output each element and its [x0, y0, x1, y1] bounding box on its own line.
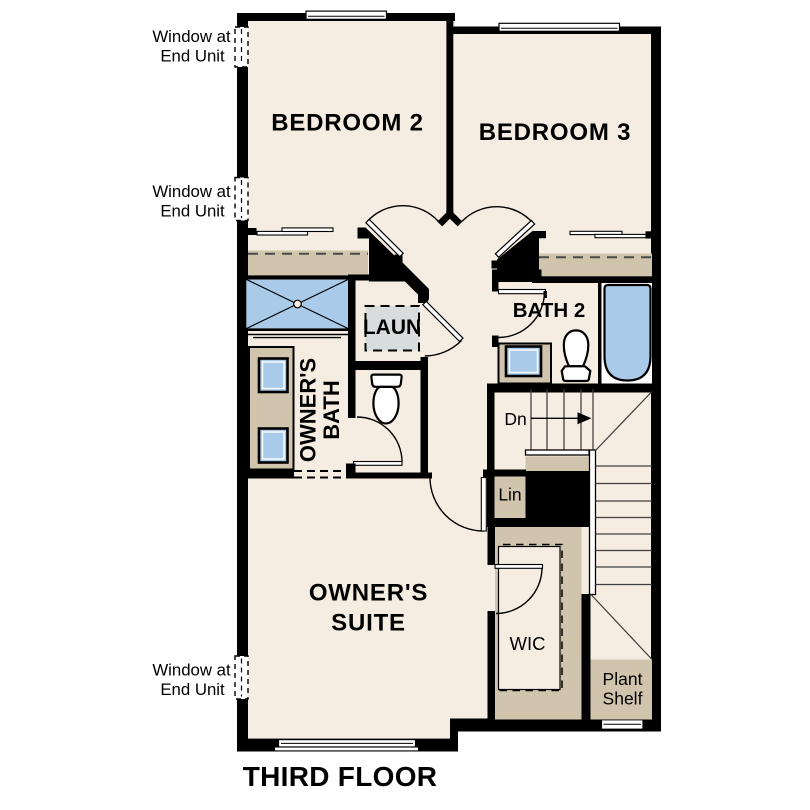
- svg-text:Window at: Window at: [152, 182, 231, 201]
- svg-text:BATH 2: BATH 2: [513, 299, 586, 322]
- svg-text:OWNER'S: OWNER'S: [309, 580, 428, 607]
- svg-text:LAUN: LAUN: [363, 316, 421, 339]
- svg-text:Window at: Window at: [152, 27, 231, 46]
- svg-text:End Unit: End Unit: [160, 680, 225, 699]
- svg-text:Shelf: Shelf: [603, 689, 643, 709]
- svg-text:THIRD FLOOR: THIRD FLOOR: [243, 761, 438, 792]
- svg-text:BEDROOM 3: BEDROOM 3: [479, 119, 632, 146]
- svg-text:SUITE: SUITE: [331, 610, 406, 637]
- svg-text:End Unit: End Unit: [160, 202, 225, 221]
- svg-text:Lin: Lin: [498, 485, 521, 505]
- svg-text:BEDROOM 2: BEDROOM 2: [271, 110, 424, 137]
- svg-text:WIC: WIC: [510, 633, 546, 654]
- svg-text:Dn: Dn: [504, 409, 526, 429]
- svg-text:OWNER'S: OWNER'S: [296, 358, 321, 462]
- svg-text:BATH: BATH: [319, 380, 344, 439]
- svg-text:Window at: Window at: [152, 661, 231, 680]
- svg-text:End Unit: End Unit: [160, 47, 225, 66]
- svg-text:Plant: Plant: [603, 669, 643, 689]
